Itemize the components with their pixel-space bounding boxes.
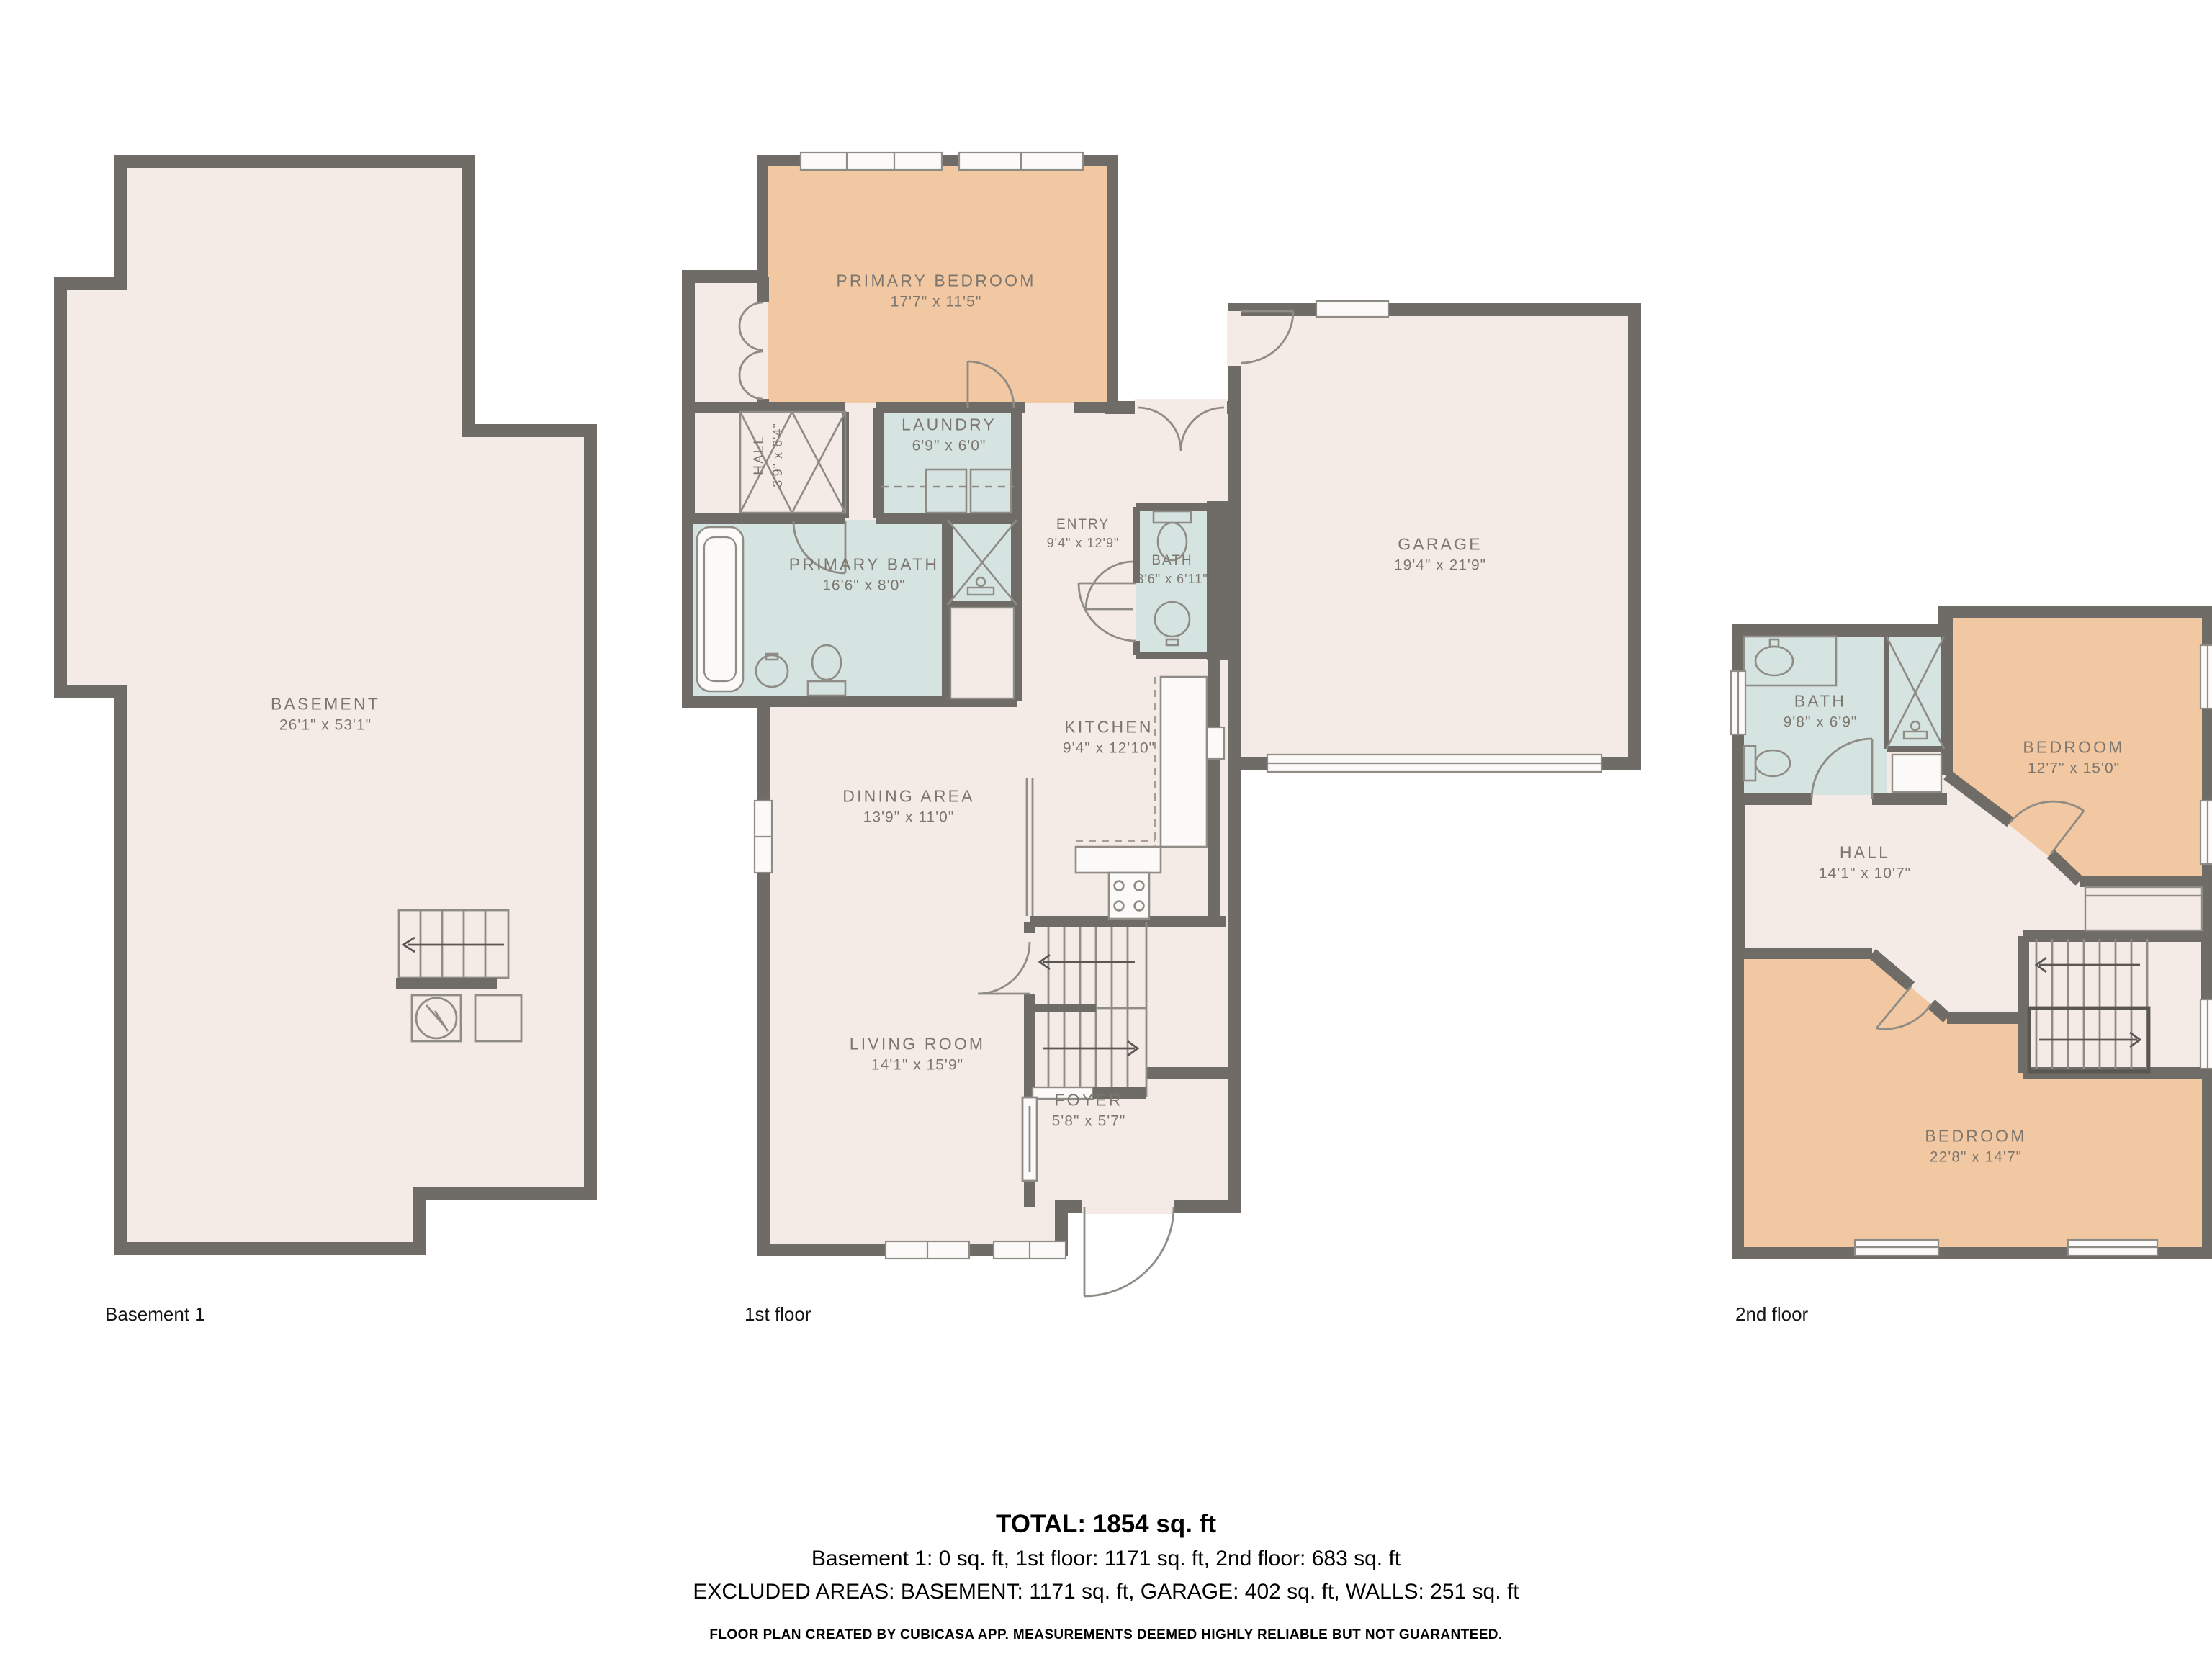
room-dims: 14'1" x 15'9" (850, 1057, 986, 1076)
room-label-bath-2f: BATH 9'8" x 6'9" (1784, 693, 1858, 734)
room-name: FOYER (1052, 1092, 1126, 1112)
excluded-areas: EXCLUDED AREAS: BASEMENT: 1171 sq. ft, G… (0, 1580, 2212, 1604)
room-dims: 26'1" x 53'1" (271, 717, 380, 736)
floor-label-first: 1st floor (745, 1303, 811, 1325)
summary-footer: TOTAL: 1854 sq. ft Basement 1: 0 sq. ft,… (0, 1509, 2212, 1643)
room-label-primary-bedroom: PRIMARY BEDROOM 17'7" x 11'5" (836, 272, 1035, 313)
floor-plan-canvas: BASEMENT 26'1" x 53'1" PRIMARY BEDROOM 1… (0, 0, 2212, 1659)
stove-icon (1109, 873, 1149, 919)
bathtub-icon (697, 527, 743, 691)
room-label-primary-bath: PRIMARY BATH 16'6" x 8'0" (789, 556, 939, 597)
room-label-hall-1f: HALL 3'9" x 6'4" (752, 423, 786, 487)
room-name: BATH (1136, 553, 1208, 570)
floor-label-second: 2nd floor (1735, 1303, 1808, 1325)
room-name: LIVING ROOM (850, 1035, 986, 1056)
room-name: PRIMARY BEDROOM (836, 272, 1035, 293)
room-name: GARAGE (1394, 536, 1486, 557)
room-dims: 12'7" x 15'0" (2023, 760, 2124, 779)
room-label-bedroom-bottom: BEDROOM 22'8" x 14'7" (1925, 1128, 2026, 1169)
room-dims: 17'7" x 11'5" (836, 294, 1035, 313)
room-name: ENTRY (1047, 517, 1120, 534)
room-dims: 6'9" x 6'0" (902, 438, 997, 457)
room-dims: 9'8" x 6'9" (1784, 714, 1858, 733)
bedroom1-closet (2085, 887, 2202, 930)
wall-strip (1207, 501, 1234, 660)
room-dims: 9'4" x 12'9" (1047, 536, 1120, 552)
room-name: DINING AREA (842, 788, 974, 809)
room-name: BEDROOM (1925, 1128, 2026, 1148)
room-label-basement: BASEMENT 26'1" x 53'1" (271, 696, 380, 737)
room-label-bedroom-top: BEDROOM 12'7" x 15'0" (2023, 739, 2124, 780)
room-label-foyer: FOYER 5'8" x 5'7" (1052, 1092, 1126, 1133)
room-dims: 14'1" x 10'7" (1819, 866, 1911, 884)
room-name: PRIMARY BATH (789, 556, 939, 577)
room-label-bath-1f: BATH 3'6" x 6'11" (1136, 553, 1208, 588)
floor-label-basement: Basement 1 (105, 1303, 205, 1325)
total-area: TOTAL: 1854 sq. ft (0, 1509, 2212, 1539)
first-floor-plan (688, 153, 1635, 1296)
room-dims: 13'9" x 11'0" (842, 809, 974, 828)
floor-plan-drawing (0, 0, 2212, 1659)
room-dims: 16'6" x 8'0" (789, 577, 939, 596)
room-name: BATH (1784, 693, 1858, 714)
room-name: KITCHEN (1063, 719, 1155, 739)
closet-top-of-stairs (1892, 755, 1941, 792)
room-label-hall-2f: HALL 14'1" x 10'7" (1819, 844, 1911, 885)
disclaimer: FLOOR PLAN CREATED BY CUBICASA APP. MEAS… (0, 1627, 2212, 1643)
room-label-laundry: LAUNDRY 6'9" x 6'0" (902, 416, 997, 457)
room-name: BEDROOM (2023, 739, 2124, 760)
room-label-kitchen: KITCHEN 9'4" x 12'10" (1063, 719, 1155, 760)
room-dims: 3'9" x 6'4" (770, 423, 787, 487)
room-dims: 5'8" x 5'7" (1052, 1113, 1126, 1132)
room-dims: 19'4" x 21'9" (1394, 557, 1486, 576)
room-dims: 3'6" x 6'11" (1136, 572, 1208, 588)
floor-areas: Basement 1: 0 sq. ft, 1st floor: 1171 sq… (0, 1547, 2212, 1571)
basement-wall-stub (396, 978, 497, 989)
room-label-living-room: LIVING ROOM 14'1" x 15'9" (850, 1035, 986, 1076)
room-label-entry: ENTRY 9'4" x 12'9" (1047, 517, 1120, 552)
room-name: LAUNDRY (902, 416, 997, 437)
room-name: HALL (1819, 844, 1911, 865)
room-name: BASEMENT (271, 696, 380, 716)
room-dims: 22'8" x 14'7" (1925, 1149, 2026, 1168)
room-name: HALL (752, 423, 769, 487)
linen-closet (950, 608, 1014, 698)
room-label-garage: GARAGE 19'4" x 21'9" (1394, 536, 1486, 577)
room-label-dining-area: DINING AREA 13'9" x 11'0" (842, 788, 974, 829)
room-dims: 9'4" x 12'10" (1063, 740, 1155, 759)
